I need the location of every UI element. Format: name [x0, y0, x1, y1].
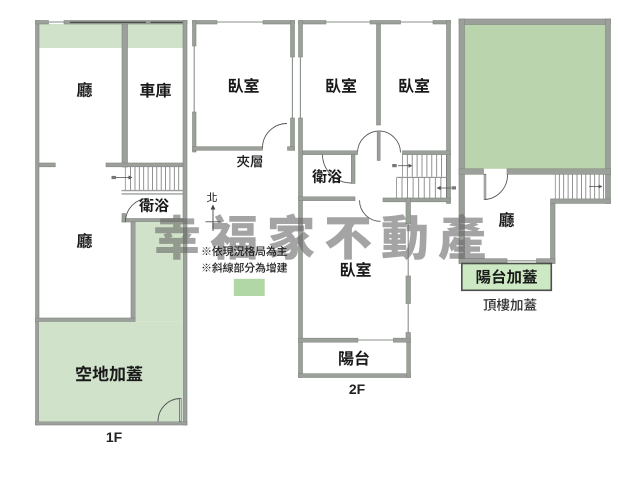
svg-text:2F: 2F — [349, 381, 366, 397]
svg-text:1F: 1F — [106, 429, 123, 445]
